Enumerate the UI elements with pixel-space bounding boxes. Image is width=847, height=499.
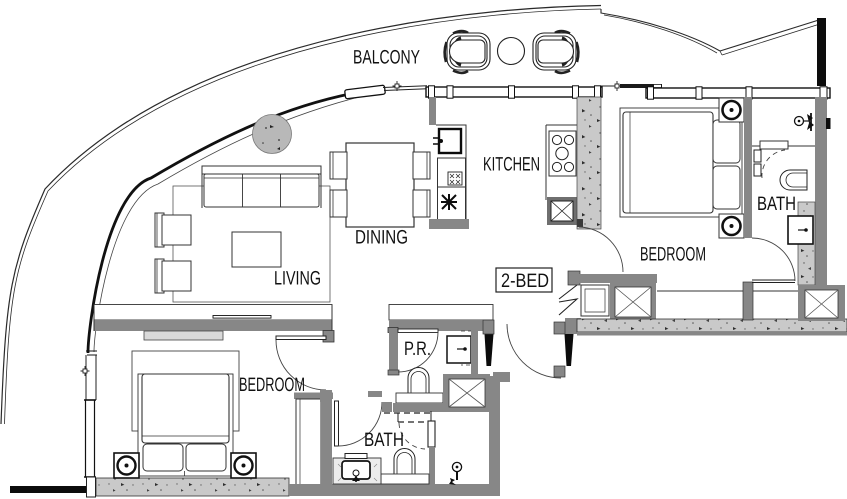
- svg-text:BATH: BATH: [364, 429, 404, 451]
- svg-text:BEDROOM: BEDROOM: [239, 374, 305, 396]
- svg-text:KITCHEN: KITCHEN: [483, 154, 540, 176]
- svg-text:P.R.: P.R.: [404, 338, 431, 360]
- svg-text:BATH: BATH: [757, 193, 796, 215]
- svg-text:DINING: DINING: [355, 227, 408, 249]
- svg-text:LIVING: LIVING: [274, 268, 321, 290]
- svg-text:BALCONY: BALCONY: [353, 47, 420, 69]
- svg-text:BEDROOM: BEDROOM: [640, 244, 706, 266]
- svg-text:2-BED: 2-BED: [501, 270, 549, 292]
